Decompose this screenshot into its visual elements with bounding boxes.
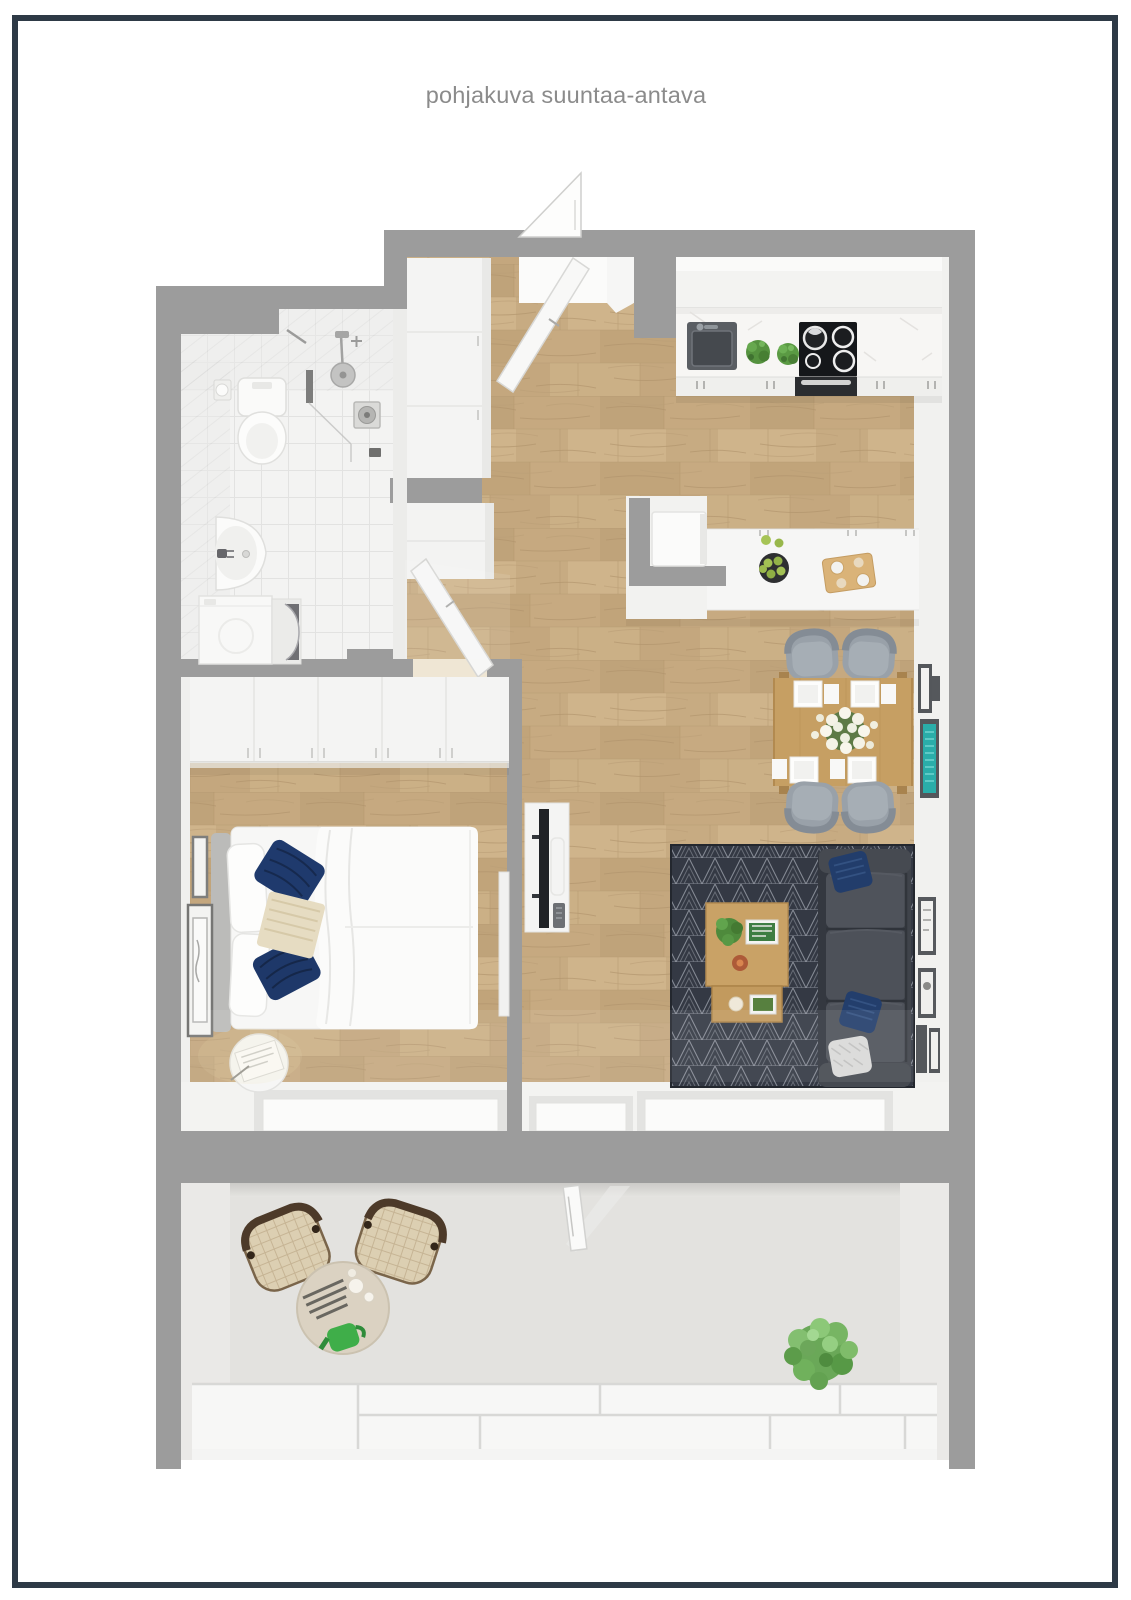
svg-text:pohjakuva suuntaa-antava: pohjakuva suuntaa-antava	[426, 82, 707, 108]
